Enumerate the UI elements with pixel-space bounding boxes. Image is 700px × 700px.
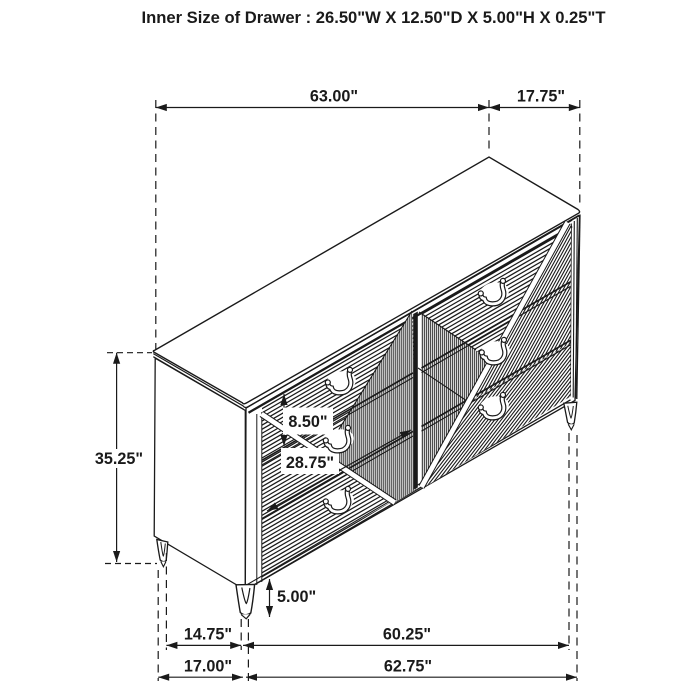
svg-text:Inner Size of Drawer : 26.50"W: Inner Size of Drawer : 26.50"W X 12.50"D…: [141, 8, 605, 27]
svg-text:17.00": 17.00": [184, 658, 232, 676]
svg-text:63.00": 63.00": [310, 88, 358, 106]
svg-text:60.25": 60.25": [383, 626, 431, 644]
svg-text:17.75": 17.75": [517, 88, 565, 106]
svg-text:35.25": 35.25": [95, 450, 143, 468]
svg-text:62.75": 62.75": [384, 658, 432, 676]
svg-text:28.75": 28.75": [286, 454, 334, 472]
svg-text:14.75": 14.75": [184, 626, 232, 644]
svg-text:8.50": 8.50": [288, 413, 327, 431]
svg-text:5.00": 5.00": [277, 588, 316, 606]
